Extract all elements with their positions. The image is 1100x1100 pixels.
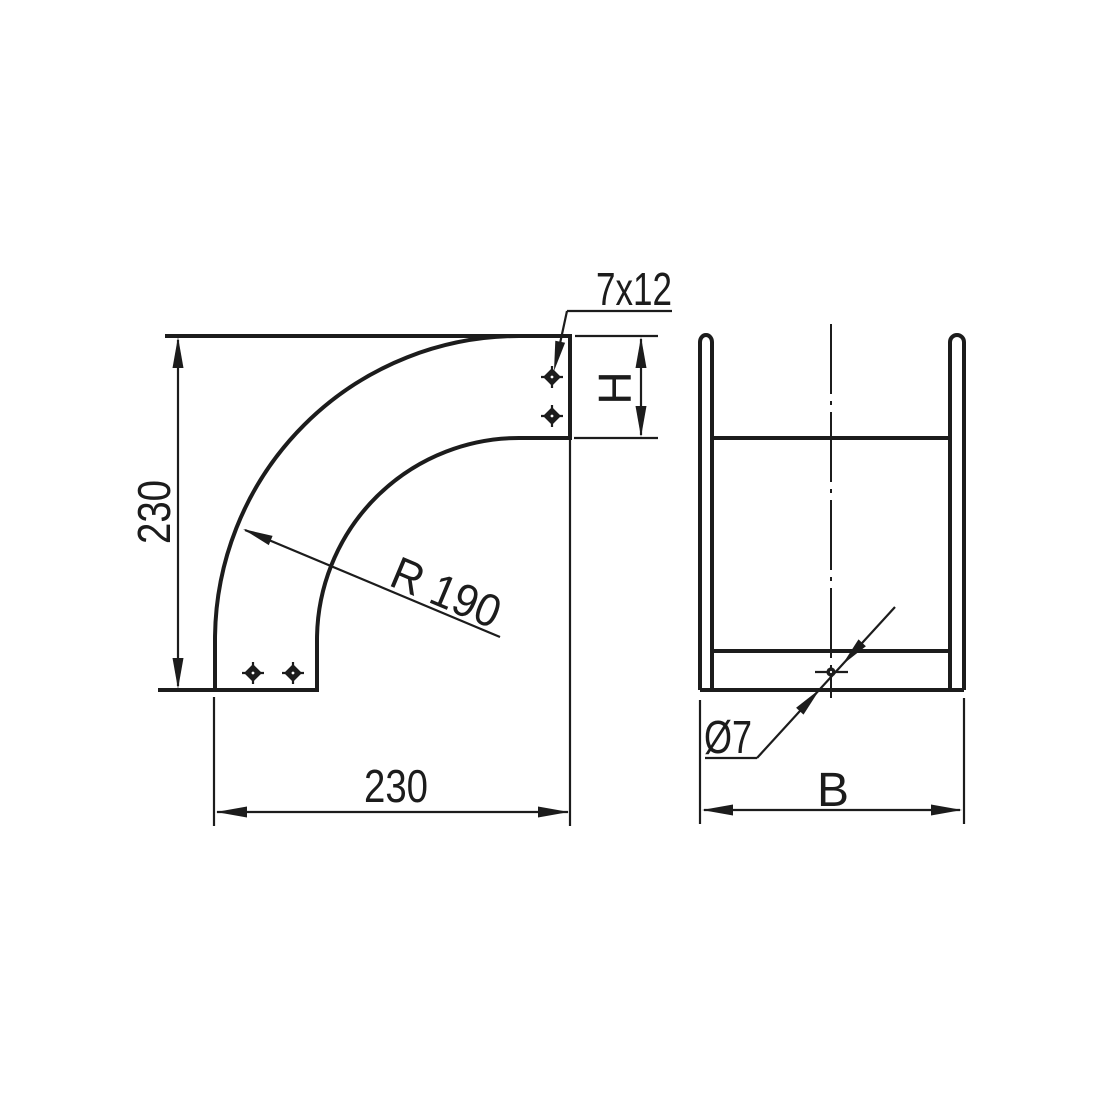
slot-hole-top-2 <box>541 405 563 427</box>
drawing-page: 230 230 R 190 7x12 <box>0 0 1100 1100</box>
hole-callout: Ø7 <box>704 607 895 763</box>
side-wall-right <box>950 335 964 690</box>
arrowhead-b-right <box>931 805 962 816</box>
bend-outline-inner <box>158 336 570 690</box>
end-height-label: H <box>589 371 641 404</box>
radius-callout: R 190 <box>243 529 509 638</box>
arrowhead-b-left <box>702 805 733 816</box>
dimension-vertical-230: 230 <box>128 337 184 689</box>
arrowhead-h-up <box>636 337 647 368</box>
technical-drawing: 230 230 R 190 7x12 <box>0 0 1100 1100</box>
side-view: Ø7 B <box>700 324 964 824</box>
arrowhead-right <box>538 807 569 818</box>
slot-hole-top-1 <box>541 366 563 388</box>
arrowhead-radius <box>243 529 273 545</box>
arrowhead-down <box>173 658 184 689</box>
front-view: 230 230 R 190 7x12 <box>128 263 672 826</box>
arrowhead-up <box>173 337 184 368</box>
arrowhead-h-down <box>636 406 647 437</box>
radius-label: R 190 <box>384 546 509 638</box>
slot-hole-foot-1 <box>242 662 264 684</box>
dimension-H: H <box>574 336 658 438</box>
bend-outline-outer-arc <box>215 336 519 690</box>
arrowhead-slot-leader <box>554 341 565 371</box>
hole-diameter-label: Ø7 <box>704 711 752 763</box>
vertical-dimension-label: 230 <box>128 480 180 544</box>
arrowhead-hole-lower <box>796 689 820 715</box>
dimension-horizontal-230: 230 <box>214 440 570 826</box>
slot-hole-foot-2 <box>282 662 304 684</box>
slot-callout-label: 7x12 <box>596 263 672 315</box>
side-wall-left <box>700 335 712 690</box>
arrowhead-left <box>216 807 247 818</box>
horizontal-dimension-label: 230 <box>364 760 428 812</box>
width-label: B <box>817 764 849 817</box>
